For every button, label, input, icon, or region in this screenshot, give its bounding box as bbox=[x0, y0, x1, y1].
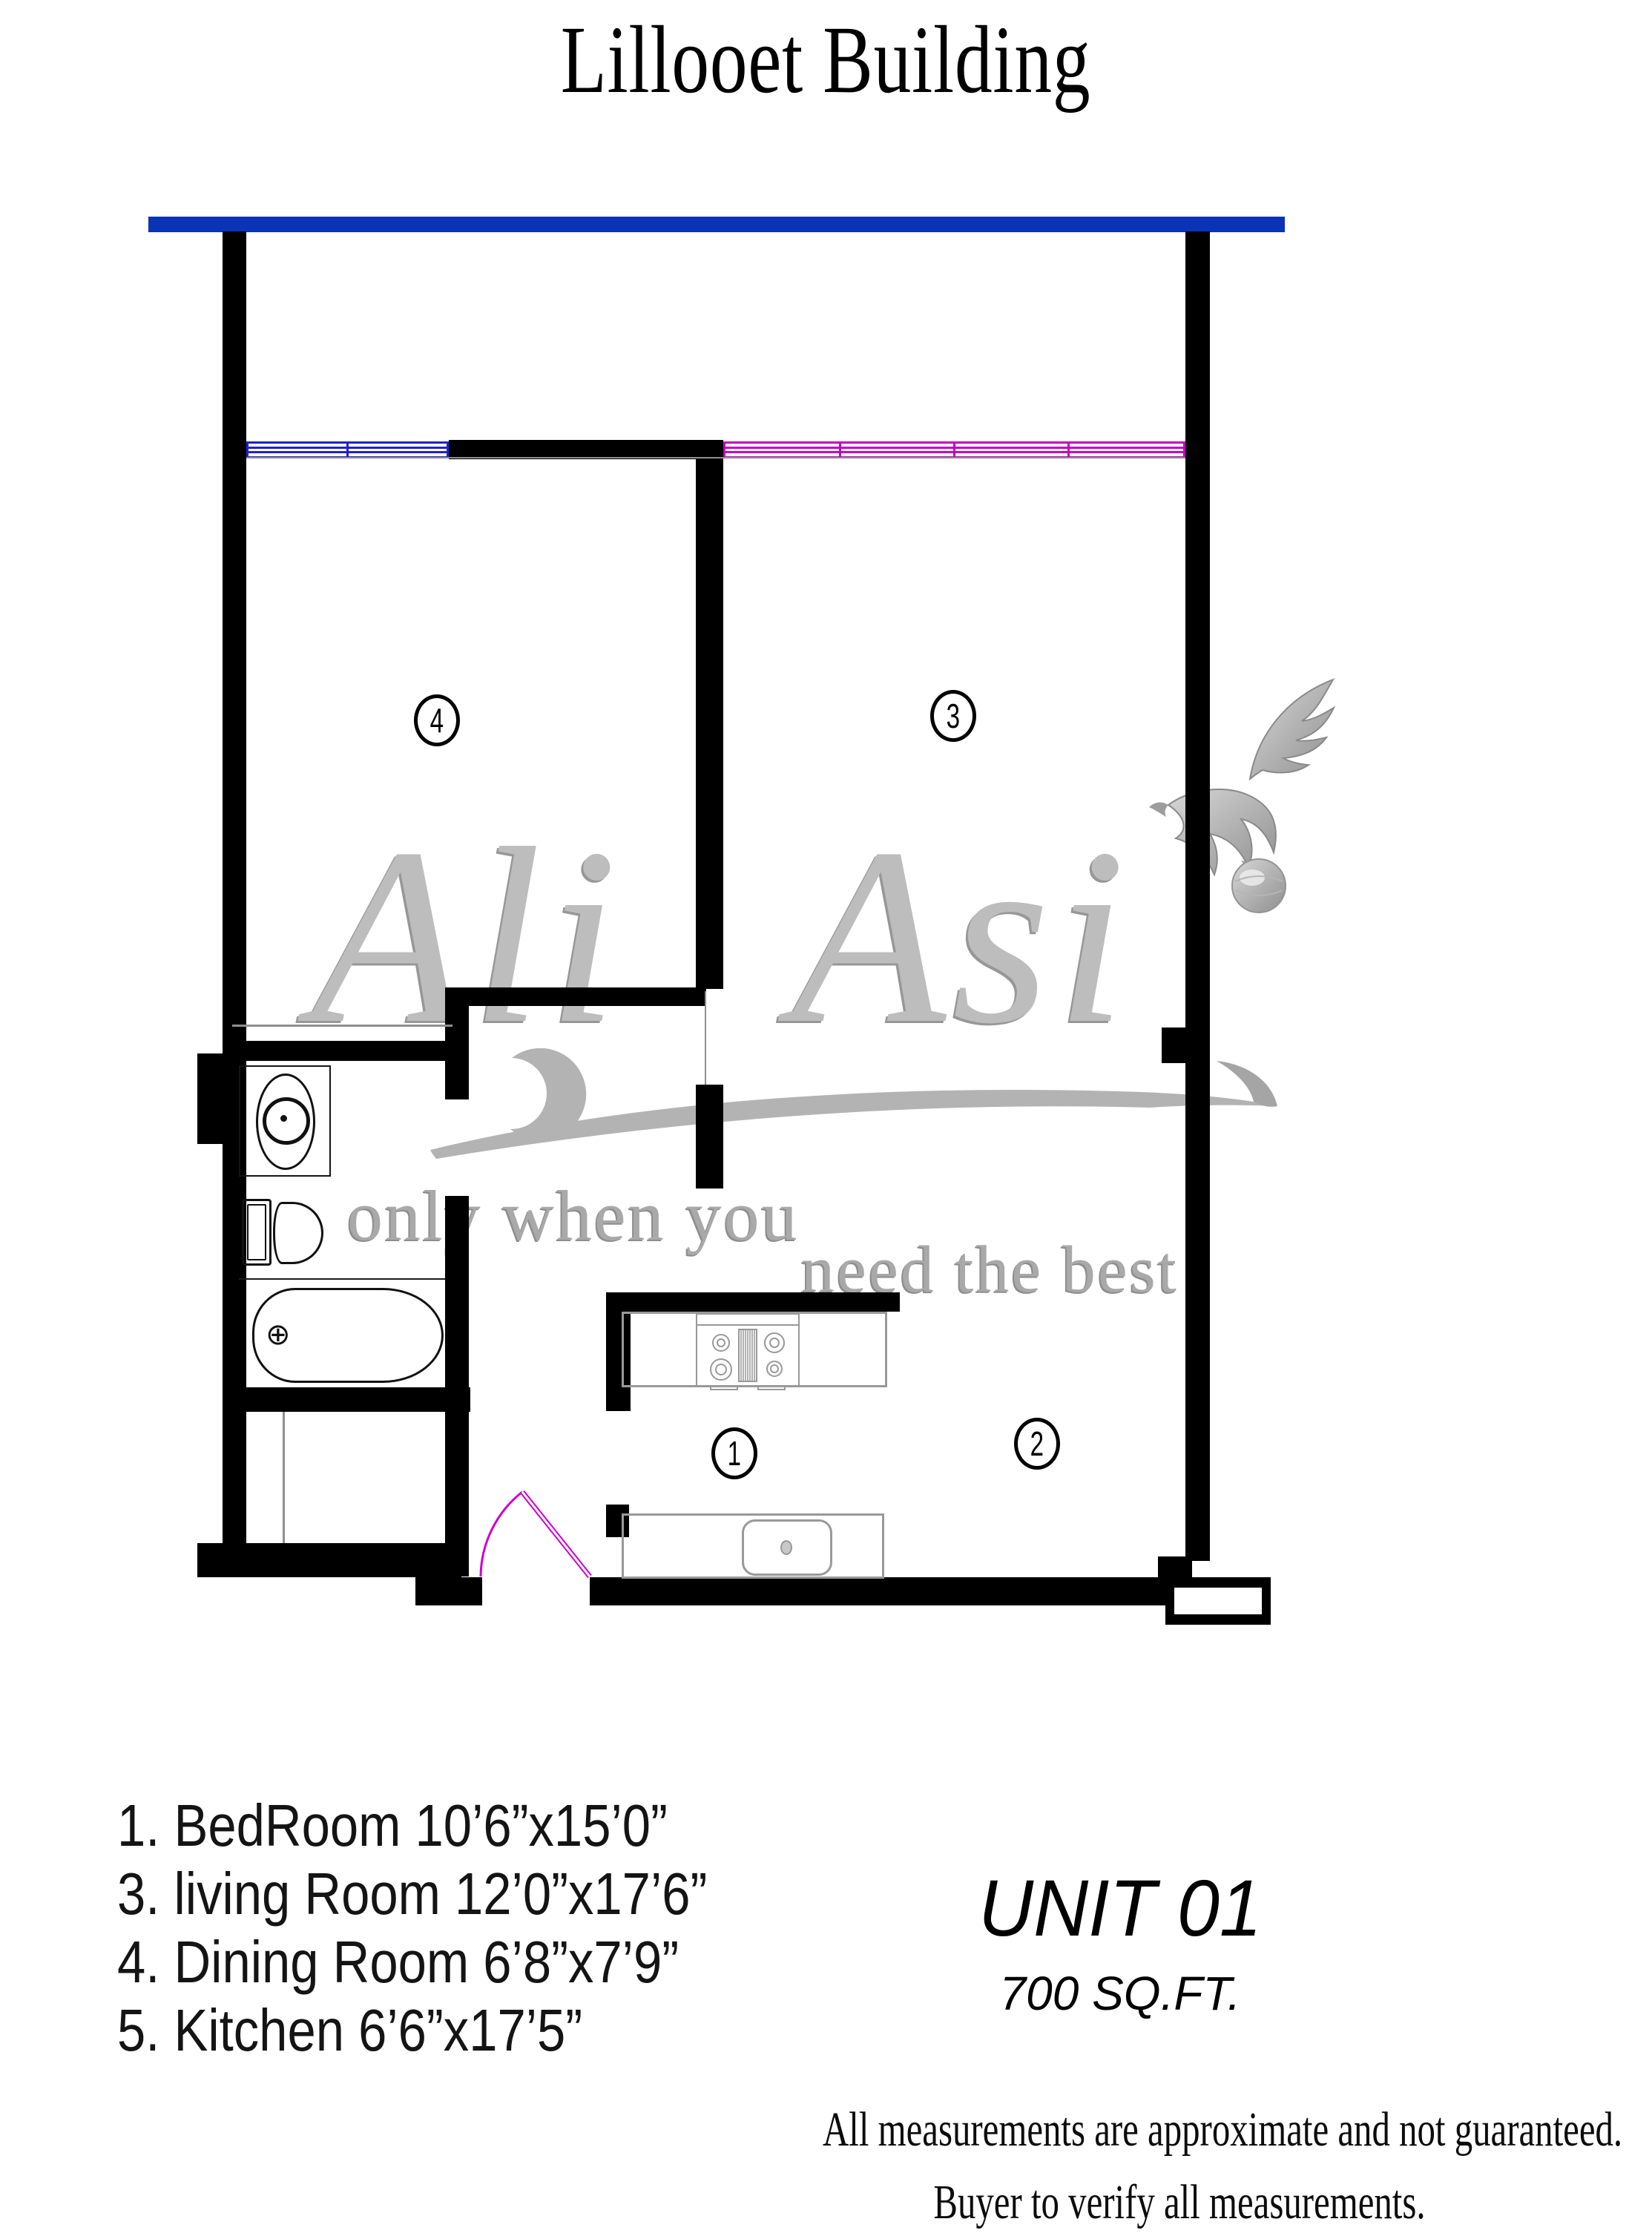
room-marker-4-number: 4 bbox=[430, 700, 444, 740]
disclaimer-line-2: Buyer to verify all measurements. bbox=[823, 2166, 1536, 2239]
room-marker-4: 4 bbox=[414, 694, 460, 746]
legend-item-living-room: 3. living Room 12’0”x17’6” bbox=[117, 1860, 707, 1928]
room-marker-1: 1 bbox=[711, 1427, 757, 1479]
unit-info: UNIT 01 700 SQ.FT. bbox=[912, 1867, 1328, 2021]
page-title-wrap: Lillooet Building bbox=[0, 4, 1652, 116]
disclaimer-line-1: All measurements are approximate and not… bbox=[823, 2094, 1536, 2166]
room-legend: 1. BedRoom 10’6”x15’0” 3. living Room 12… bbox=[117, 1792, 803, 2065]
room-marker-3: 3 bbox=[930, 690, 976, 742]
disclaimer: All measurements are approximate and not… bbox=[697, 2094, 1652, 2239]
room-marker-3-number: 3 bbox=[947, 696, 960, 736]
room-marker-1-number: 1 bbox=[728, 1433, 741, 1473]
legend-item-kitchen: 5. Kitchen 6’6”x17’5” bbox=[117, 1996, 707, 2065]
room-marker-2: 2 bbox=[1014, 1418, 1060, 1470]
room-marker-2-number: 2 bbox=[1030, 1424, 1044, 1464]
unit-area: 700 SQ.FT. bbox=[912, 1966, 1328, 2021]
page-title: Lillooet Building bbox=[561, 4, 1091, 116]
legend-item-dining-room: 4. Dining Room 6’8”x7’9” bbox=[117, 1928, 707, 1996]
unit-name: UNIT 01 bbox=[923, 1867, 1317, 1950]
legend-item-bedroom: 1. BedRoom 10’6”x15’0” bbox=[117, 1792, 707, 1860]
